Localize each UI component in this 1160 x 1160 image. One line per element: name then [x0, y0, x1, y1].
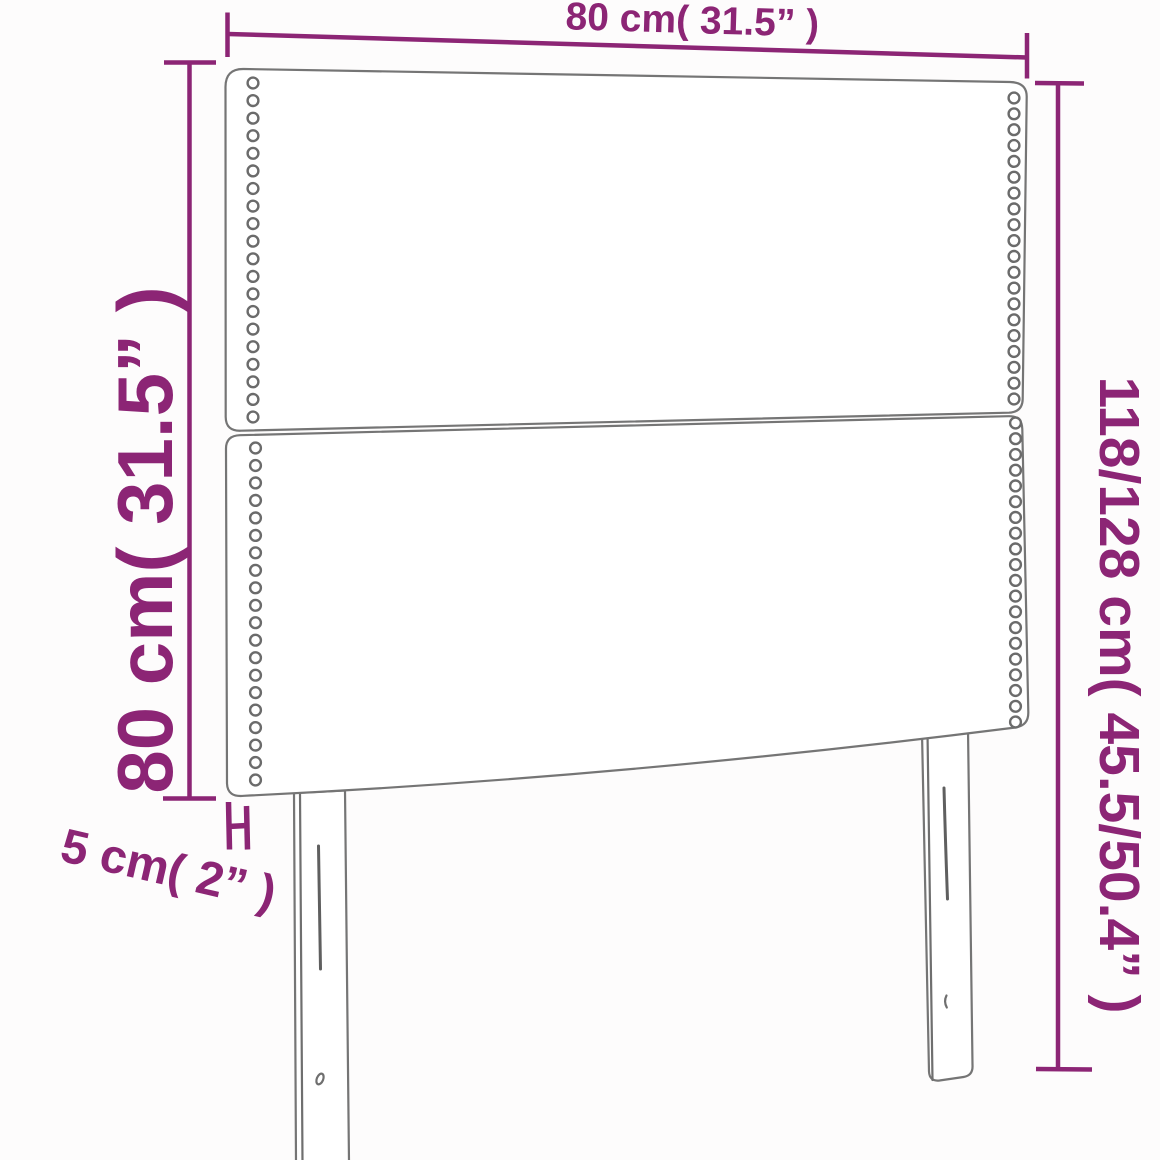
- nailhead-dot: [1010, 559, 1021, 570]
- nailhead-dot: [1009, 314, 1020, 325]
- nailhead-dot: [248, 359, 259, 370]
- nailhead-dot: [1009, 330, 1020, 341]
- nailhead-dot: [1010, 465, 1021, 476]
- total-height-dimension-label: 118/128 cm( 45.5/50.4” ): [1087, 377, 1151, 1014]
- nailhead-dot: [248, 183, 259, 194]
- nailhead-dot: [1010, 701, 1021, 712]
- nailhead-dot: [250, 582, 261, 593]
- nailhead-dot: [250, 635, 261, 646]
- nailhead-dot: [1009, 172, 1020, 183]
- nailhead-dot: [1009, 267, 1020, 278]
- nailhead-dot: [1010, 528, 1021, 539]
- nailhead-dot: [250, 443, 261, 454]
- nailhead-dot: [1009, 93, 1020, 104]
- nailhead-dot: [1010, 418, 1021, 429]
- nailhead-dot: [248, 201, 259, 212]
- nailhead-dot: [248, 166, 259, 177]
- nailhead-dot: [1010, 481, 1021, 492]
- nailhead-dot: [250, 460, 261, 471]
- nailhead-dot: [1010, 717, 1021, 728]
- nailhead-dot: [1009, 188, 1020, 199]
- nailhead-dot: [248, 78, 259, 89]
- nailhead-dot: [1010, 622, 1021, 633]
- nailhead-dot: [1010, 591, 1021, 602]
- nailhead-dot: [1009, 299, 1020, 310]
- nailhead-dot: [248, 289, 259, 300]
- product-dimension-diagram: 80 cm( 31.5” ) 80 cm( 31.5” ) 118/128 cm…: [0, 0, 1160, 1160]
- nailhead-dot: [1009, 108, 1020, 119]
- nailhead-dot: [248, 412, 259, 423]
- nailhead-dot: [1010, 496, 1021, 507]
- nailhead-dot: [248, 113, 259, 124]
- nailhead-dot: [250, 670, 261, 681]
- nailhead-dot: [248, 306, 259, 317]
- nailhead-dot: [250, 600, 261, 611]
- nailhead-dot: [1009, 283, 1020, 294]
- nailhead-dot: [250, 722, 261, 733]
- nailhead-dot: [248, 218, 259, 229]
- nailhead-dot: [248, 271, 259, 282]
- nailhead-dot: [1009, 235, 1020, 246]
- nailhead-dot: [1010, 638, 1021, 649]
- nailhead-dot: [250, 547, 261, 558]
- nailhead-dot: [1009, 251, 1020, 262]
- nailhead-dot: [248, 394, 259, 405]
- nailhead-dot: [1009, 156, 1020, 167]
- depth-bracket: [229, 802, 248, 850]
- nailhead-dot: [250, 530, 261, 541]
- nailhead-dot: [1010, 606, 1021, 617]
- left-leg-slot: [319, 846, 321, 969]
- nailhead-dot: [250, 705, 261, 716]
- nailhead-dot: [248, 148, 259, 159]
- nailhead-dot: [1010, 654, 1021, 665]
- nailhead-dot: [250, 565, 261, 576]
- nailhead-dot: [248, 95, 259, 106]
- headboard-upper-panel: [225, 69, 1026, 431]
- nailhead-dot: [250, 513, 261, 524]
- nailhead-dot: [1010, 575, 1021, 586]
- nailhead-dot: [250, 652, 261, 663]
- nailhead-dot: [1009, 394, 1020, 405]
- nailhead-dot: [250, 757, 261, 768]
- nailhead-dot: [248, 130, 259, 141]
- nailhead-dot: [248, 341, 259, 352]
- nailhead-dot: [1010, 544, 1021, 555]
- width-dimension-label: 80 cm( 31.5” ): [565, 0, 820, 46]
- nailhead-dot: [250, 495, 261, 506]
- right-leg: [922, 730, 973, 1081]
- nailhead-dot: [250, 478, 261, 489]
- nailhead-dot: [1009, 219, 1020, 230]
- nailhead-dot: [1010, 669, 1021, 680]
- nailhead-dot: [248, 324, 259, 335]
- nailhead-dot: [1009, 140, 1020, 151]
- nailhead-dot: [248, 376, 259, 387]
- nailhead-dot: [1009, 204, 1020, 215]
- nailhead-dot: [1010, 512, 1021, 523]
- nailhead-dot: [1009, 124, 1020, 135]
- nailhead-dot: [1009, 378, 1020, 389]
- nailhead-dot: [250, 775, 261, 786]
- headboard-lower-panel: [226, 416, 1028, 796]
- nailhead-dot: [250, 617, 261, 628]
- nailhead-dot: [248, 236, 259, 247]
- left-leg: [294, 791, 349, 1160]
- nailhead-dot: [250, 740, 261, 751]
- nailhead-dot: [1010, 449, 1021, 460]
- nailhead-dot: [1010, 685, 1021, 696]
- nailhead-dot: [250, 687, 261, 698]
- nailhead-dot: [1009, 346, 1020, 357]
- headboard: [225, 69, 1028, 796]
- nailhead-dot: [248, 253, 259, 264]
- total-height-dimension-line: [1035, 83, 1092, 1070]
- nailhead-dot: [1010, 433, 1021, 444]
- nailhead-dot: [1009, 362, 1020, 373]
- panel-height-dimension-label: 80 cm( 31.5” ): [101, 286, 189, 793]
